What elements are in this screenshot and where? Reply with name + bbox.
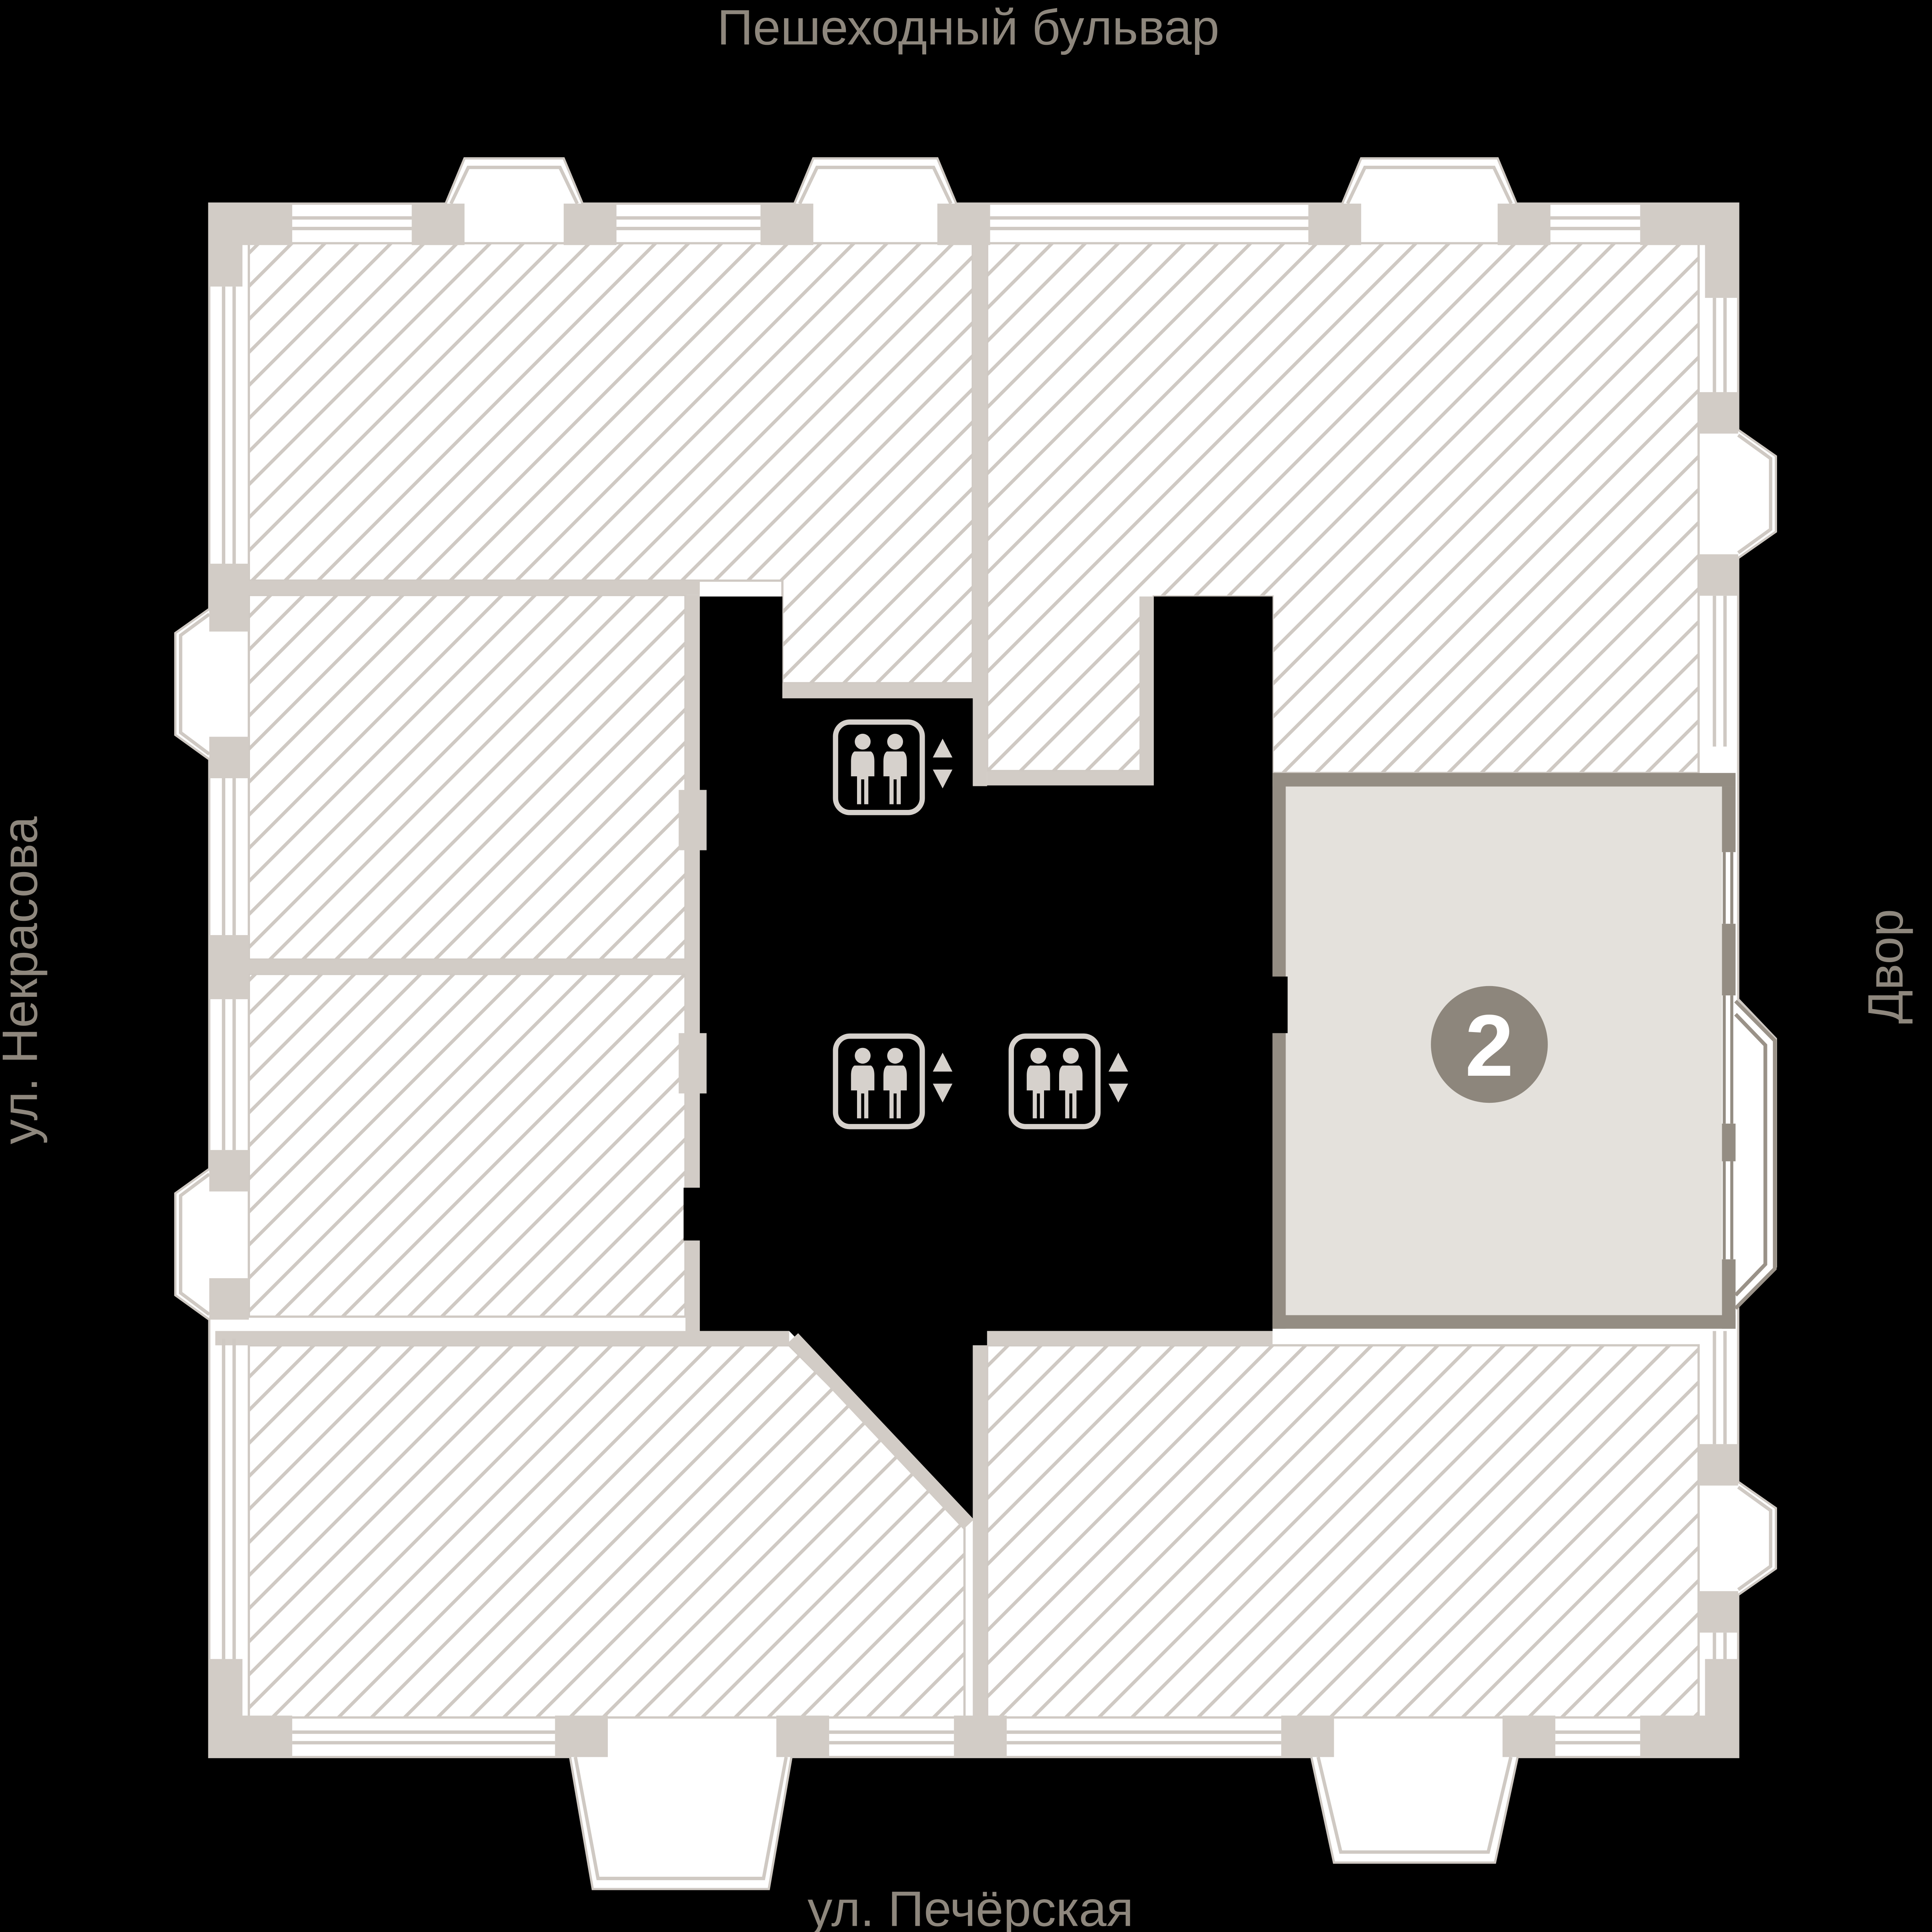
apartment-bottom-right — [987, 1345, 1699, 1718]
street-label-top: Пешеходный бульвар — [717, 0, 1219, 55]
floor-plan: 2 Пешеходный бульвар ул. Печёрская ул. Н… — [0, 0, 1932, 1932]
street-label-right: Двор — [1858, 909, 1913, 1024]
unit-number-badge[interactable]: 2 — [1431, 986, 1548, 1103]
unit-2[interactable]: 2 — [1270, 773, 1775, 1328]
street-label-left: ул. Некрасова — [0, 816, 48, 1144]
floor-plan-stage: 2 Пешеходный бульвар ул. Печёрская ул. Н… — [0, 0, 1932, 1932]
apartment-top-right — [987, 243, 1699, 773]
badge-number: 2 — [1465, 997, 1514, 1094]
street-label-bottom: ул. Печёрская — [808, 1881, 1134, 1932]
apartment-left-upper — [249, 595, 685, 960]
apartment-left-lower — [249, 974, 685, 1316]
